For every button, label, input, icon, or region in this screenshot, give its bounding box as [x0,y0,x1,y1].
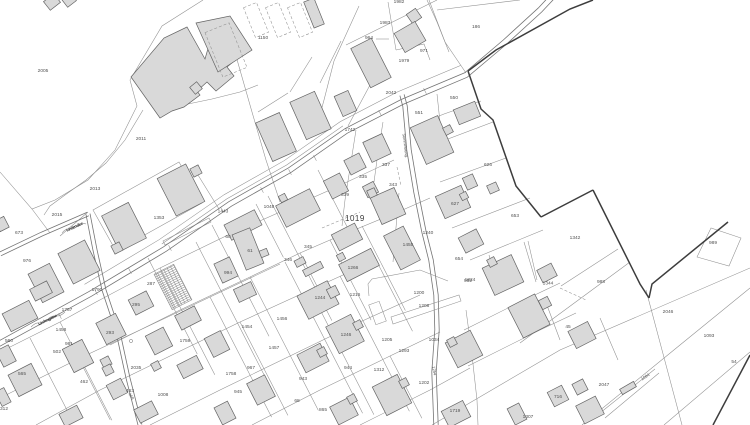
svg-text:335: 335 [359,174,367,180]
svg-text:994: 994 [224,270,232,276]
svg-text:295: 295 [132,302,140,308]
svg-text:293: 293 [106,330,114,336]
svg-text:673: 673 [15,230,23,236]
svg-text:964: 964 [365,35,373,41]
svg-text:1307: 1307 [523,414,534,420]
svg-text:1266: 1266 [348,265,359,271]
svg-text:1742: 1742 [345,127,356,133]
svg-text:1240: 1240 [423,230,434,236]
svg-text:1758: 1758 [226,371,237,377]
svg-text:2035: 2035 [131,365,142,371]
svg-text:2011: 2011 [136,136,147,142]
svg-text:1244: 1244 [315,295,326,301]
svg-text:981: 981 [65,341,73,347]
svg-text:1353: 1353 [154,215,165,221]
svg-text:2013: 2013 [90,186,101,192]
svg-text:2046: 2046 [663,309,674,315]
svg-text:339: 339 [341,192,349,198]
svg-text:1455: 1455 [403,242,414,248]
svg-text:1205: 1205 [382,337,393,343]
svg-text:1757: 1757 [62,307,73,313]
svg-text:653: 653 [511,213,519,219]
svg-text:54: 54 [731,359,737,365]
svg-text:1790: 1790 [92,287,103,293]
svg-text:1824: 1824 [465,277,476,283]
svg-text:1457: 1457 [269,345,280,351]
svg-text:1443: 1443 [218,209,229,215]
svg-text:1202: 1202 [419,380,430,386]
svg-text:2015: 2015 [52,212,63,218]
svg-text:1093: 1093 [704,333,715,339]
svg-text:988: 988 [597,279,605,285]
svg-text:337: 337 [382,162,390,168]
svg-text:1150: 1150 [258,35,269,41]
svg-text:1454: 1454 [242,324,253,330]
svg-text:186: 186 [472,24,480,30]
svg-text:565: 565 [18,371,26,377]
svg-text:989: 989 [709,240,717,246]
svg-text:68: 68 [294,398,300,404]
svg-text:967: 967 [247,365,255,371]
svg-text:550: 550 [450,95,458,101]
svg-text:716: 716 [554,394,562,400]
svg-text:1344: 1344 [543,281,554,287]
svg-text:346: 346 [284,257,292,263]
svg-text:943: 943 [299,376,307,382]
svg-text:45: 45 [565,324,571,330]
svg-text:1246: 1246 [341,332,352,338]
svg-text:2042: 2042 [386,90,397,96]
svg-text:626: 626 [484,162,492,168]
svg-text:1293: 1293 [399,348,410,354]
svg-text:1019: 1019 [345,214,365,223]
svg-text:627: 627 [451,201,459,207]
svg-text:345: 345 [304,244,312,250]
svg-text:502: 502 [53,349,61,355]
svg-text:1759: 1759 [180,338,191,344]
svg-text:1312: 1312 [374,367,385,373]
svg-text:1034: 1034 [429,337,440,343]
svg-text:654: 654 [455,256,463,262]
svg-text:2005: 2005 [38,68,49,74]
svg-text:1216: 1216 [350,292,361,298]
svg-text:61: 61 [247,248,253,254]
svg-text:865: 865 [319,407,327,413]
svg-text:462: 462 [80,379,88,385]
svg-text:551: 551 [415,110,423,116]
svg-text:343: 343 [389,182,397,188]
svg-text:1979: 1979 [399,58,410,64]
svg-text:971: 971 [420,48,428,54]
svg-text:945: 945 [234,389,242,395]
svg-text:976: 976 [23,258,31,264]
svg-text:1008: 1008 [158,392,169,398]
svg-text:1342: 1342 [570,235,581,241]
svg-text:1456: 1456 [277,316,288,322]
svg-text:60: 60 [225,234,231,240]
svg-text:1719: 1719 [450,408,461,414]
svg-text:560: 560 [5,338,13,344]
svg-text:1982: 1982 [394,0,405,5]
svg-text:1983: 1983 [380,20,391,26]
svg-text:287: 287 [147,281,155,287]
svg-text:1048: 1048 [264,204,275,210]
svg-text:1458: 1458 [56,327,67,333]
svg-text:312: 312 [0,406,8,412]
svg-text:944: 944 [344,365,352,371]
svg-text:1208: 1208 [419,303,430,309]
svg-text:2047: 2047 [599,382,610,388]
svg-text:1200: 1200 [414,290,425,296]
